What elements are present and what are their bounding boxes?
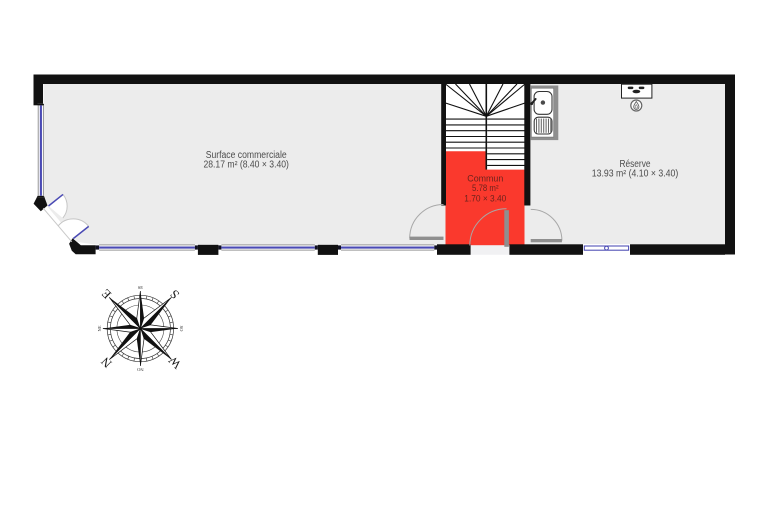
svg-text:28.17 m² (8.40 × 3.40): 28.17 m² (8.40 × 3.40) xyxy=(203,160,289,171)
svg-text:13.93 m² (4.10 × 3.40): 13.93 m² (4.10 × 3.40) xyxy=(592,168,679,179)
svg-text:NO: NO xyxy=(136,367,143,372)
svg-text:SO: SO xyxy=(179,326,184,333)
svg-text:1.70 × 3.40: 1.70 × 3.40 xyxy=(464,194,506,204)
svg-text:Commun: Commun xyxy=(467,174,503,184)
svg-text:NE: NE xyxy=(97,325,102,331)
svg-text:5.78 m²: 5.78 m² xyxy=(472,183,499,193)
svg-text:SE: SE xyxy=(138,285,144,290)
